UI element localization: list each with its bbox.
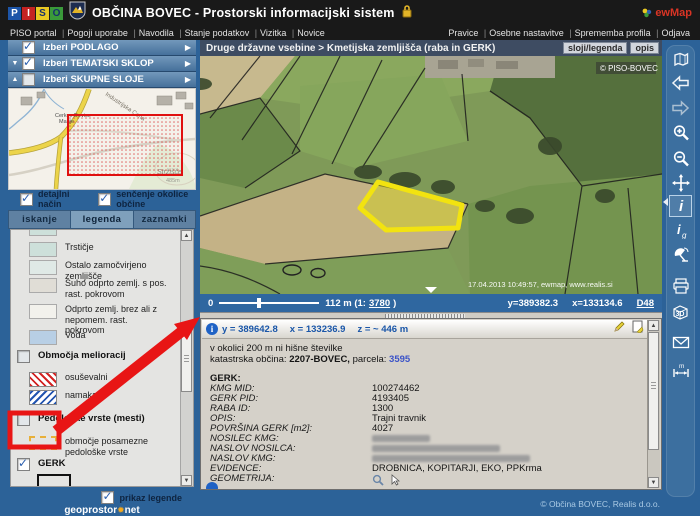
cadastral-label: katastrska občina: (210, 354, 287, 365)
prikaz-legende-checkbox[interactable] (101, 491, 114, 504)
legend-swatch (29, 260, 57, 275)
map-canvas[interactable]: © PISO-BOVEC 17.04.2013 10:49:57, ewmap,… (200, 56, 662, 294)
redacted-value (372, 435, 430, 442)
menu-item-navodila[interactable]: Navodila (139, 28, 185, 38)
melioracije-checkbox[interactable] (17, 350, 30, 363)
info-icon: i (206, 323, 218, 335)
scroll-thumb[interactable] (648, 332, 659, 450)
skupne-checkbox[interactable] (22, 73, 35, 86)
scale-slider-handle[interactable] (257, 298, 261, 308)
cadastral-value: 2207-BOVEC, (289, 354, 350, 365)
info-coord-z: z = ~ 446 m (357, 324, 408, 335)
legend-swatch-red-hatch (29, 372, 57, 387)
legend-item: območje posamezne pedološke vrste (29, 436, 169, 457)
sloji-legenda-button[interactable]: sloji/legenda (563, 42, 628, 54)
title-bar: P I S O OBČINA BOVEC - Prostorski inform… (0, 0, 700, 26)
legend-item-gerk-swatch (37, 474, 71, 487)
tab-legenda[interactable]: legenda (70, 210, 132, 229)
info-body: v okolici 200 m ni hišne številke katast… (202, 339, 648, 488)
ewmap-label: ewMap (655, 7, 692, 19)
menu-right: Pravice Osebne nastavitve Sprememba prof… (448, 28, 690, 38)
bovec-coat-of-arms-icon (69, 1, 86, 25)
svg-text:i: i (679, 198, 684, 215)
detajlni-nacin-label: detajlni način (38, 189, 82, 209)
zoom-out-icon[interactable] (669, 148, 692, 170)
overview-map[interactable]: Industrijska Cona Cerkev Device Marije S… (8, 88, 196, 190)
menu-item-osebne-nastavitve[interactable]: Osebne nastavitve (489, 28, 574, 38)
pencil-icon[interactable] (613, 320, 626, 338)
cadastral-line: katastrska občina: 2207-BOVEC, parcela: … (210, 354, 648, 365)
overview-map-icon[interactable] (669, 49, 692, 71)
scale-suffix: ) (393, 298, 396, 309)
legend-item (29, 229, 57, 236)
measure-icon[interactable]: m (669, 359, 692, 381)
piso-logo-letter: O (50, 7, 63, 20)
povrsina-value: 4027 (372, 424, 393, 434)
scroll-down-button[interactable]: ▼ (648, 477, 659, 488)
lock-icon (401, 4, 413, 23)
legend-item: namakalni (29, 390, 106, 405)
tab-zaznamki[interactable]: zaznamki (133, 210, 196, 229)
chevron-right-icon: ▶ (185, 59, 191, 68)
toolbar-collapse-arrow[interactable] (663, 198, 668, 206)
map-options-row: detajlni način senčenje okolice občine (8, 192, 196, 206)
sidebar-tabs: iskanje legenda zaznamki (8, 210, 196, 229)
hill-elevation: 485m (166, 178, 180, 184)
scale-bar-row: 0 112 m (1: 3780 ) y=389382.3 x=133134.6… (200, 294, 662, 312)
menu-item-novice[interactable]: Novice (297, 28, 325, 38)
info-scrollbar[interactable]: ▲ ▼ (647, 320, 660, 488)
menu-bar: PISO portal Pogoji uporabe Navodila Stan… (0, 26, 700, 40)
forward-arrow-icon[interactable] (669, 97, 692, 119)
piso-logo[interactable]: P I S O (8, 7, 63, 20)
3d-view-icon[interactable]: 3D (669, 301, 692, 323)
geoprostor-logo[interactable]: geoprostor✹net (8, 505, 196, 516)
legend-item: Suho odprto zemlj. s pos. rast. pokrovom (29, 278, 169, 299)
legend-group-melioracije: Območja melioracij (17, 350, 126, 363)
scroll-up-button[interactable]: ▲ (181, 230, 192, 241)
evidence-value: DROBNICA, KOPITARJI, EKO, PPKrma (372, 464, 542, 474)
legend-group-pedoloske: Pedološke vrste (mesti) (17, 413, 145, 426)
accordion-label: Izberi SKUPNE SLOJE (43, 74, 144, 85)
geoprostor-logo-right: net (125, 505, 140, 516)
svg-text:3D: 3D (676, 311, 685, 318)
map-watermark: 17.04.2013 10:49:57, ewmap, www.realis.s… (468, 280, 613, 289)
scale-text: 112 m (1: (325, 298, 366, 309)
legend-group-gerk: GERK (17, 458, 65, 471)
geometry-select-cursor-icon[interactable] (390, 474, 400, 489)
redacted-value (372, 445, 500, 452)
print-icon[interactable] (669, 275, 692, 297)
chevron-up-icon[interactable]: ▲ (8, 76, 22, 83)
scale-slider[interactable] (219, 298, 319, 308)
cursor-coord-y: y=389382.3 (508, 298, 558, 309)
menu-left: PISO portal Pogoji uporabe Navodila Stan… (10, 28, 325, 38)
opis-button[interactable]: opis (630, 42, 659, 54)
breadcrumb: Druge državne vsebine > Kmetijska zemlji… (206, 43, 495, 54)
scroll-thumb[interactable] (181, 330, 192, 392)
piso-logo-letter: S (36, 7, 49, 20)
legend-swatch-blue-hatch (29, 390, 57, 405)
svg-text:g: g (682, 231, 687, 239)
map-extent-rectangle (68, 115, 182, 175)
prikaz-legende-label: prikaz legende (119, 493, 182, 503)
mail-icon[interactable] (669, 331, 692, 353)
piso-logo-letter: P (8, 7, 21, 20)
accordion-label: Izberi TEMATSKI SKLOP (43, 58, 154, 69)
legend-item: osuševalni (29, 372, 108, 387)
gerk-checkbox[interactable] (17, 458, 30, 471)
menu-item-stanje-podatkov[interactable]: Stanje podatkov (185, 28, 260, 38)
menu-item-pogoji-uporabe[interactable]: Pogoji uporabe (67, 28, 138, 38)
piso-app-window: P I S O OBČINA BOVEC - Prostorski inform… (0, 0, 700, 516)
map-copyright: © PISO-BOVEC (600, 64, 658, 73)
copyright-footer: © Občina BOVEC, Realis d.o.o. (200, 499, 662, 509)
tab-iskanje[interactable]: iskanje (8, 210, 70, 229)
legend-scrollbar[interactable]: ▲ ▼ (180, 230, 193, 486)
scroll-up-button[interactable]: ▲ (648, 320, 659, 331)
no-house-number-text: v okolici 200 m ni hišne številke (210, 343, 648, 354)
podlago-checkbox[interactable] (22, 41, 35, 54)
legend-swatch-dashed (29, 436, 57, 450)
legend-swatch (29, 242, 57, 257)
detajlni-nacin-checkbox[interactable] (20, 193, 33, 206)
map-header: Druge državne vsebine > Kmetijska zemlji… (200, 40, 662, 56)
tematski-checkbox[interactable] (22, 57, 35, 70)
gerk-section-title: GERK: (210, 373, 648, 384)
page-title: OBČINA BOVEC - Prostorski informacijski … (92, 6, 395, 20)
accordion-izberi-skupne-sloje[interactable]: ▲ Izberi SKUPNE SLOJE ▶ (8, 72, 196, 88)
chevron-right-icon: ▶ (185, 75, 191, 84)
main-panel: Druge državne vsebine > Kmetijska zemlji… (200, 40, 662, 516)
scroll-down-button[interactable]: ▼ (181, 475, 192, 486)
cursor-coord-x: x=133134.6 (572, 298, 622, 309)
sencenje-checkbox[interactable] (98, 193, 111, 206)
scale-zero: 0 (208, 298, 213, 309)
menu-item-odjava[interactable]: Odjava (661, 28, 690, 38)
svg-text:m: m (679, 363, 684, 370)
next-result-info-icon (206, 482, 218, 490)
legend-panel: Trstičje Ostalo zamočvirjeno zemljišče S… (10, 229, 194, 487)
info-coord-y: y = 389642.8 (222, 324, 278, 335)
info-header: i y = 389642.8 x = 133236.9 z = ~ 446 m (202, 320, 648, 339)
info-coord-x: x = 133236.9 (290, 324, 346, 335)
sencenje-label: senčenje okolice občine (116, 189, 196, 209)
chevron-down-icon[interactable]: ▼ (8, 60, 22, 67)
redacted-value (372, 455, 530, 462)
legend-item: Voda (29, 330, 86, 345)
back-arrow-icon[interactable] (669, 72, 692, 94)
menu-item-sprememba-profila[interactable]: Sprememba profila (575, 28, 662, 38)
scale-value-link[interactable]: 3780 (369, 298, 390, 309)
legend-item: Trstičje (29, 242, 94, 257)
legend-swatch (29, 278, 57, 293)
show-legend-option: prikaz legende (101, 491, 182, 504)
menu-item-pravice[interactable]: Pravice (448, 28, 489, 38)
gps-satellite-icon[interactable] (669, 244, 692, 266)
legend-swatch (29, 330, 57, 345)
ewmap-icon (642, 8, 652, 18)
info-panel: i y = 389642.8 x = 133236.9 z = ~ 446 m … (200, 318, 662, 490)
star-icon: ✹ (117, 505, 125, 515)
ewmap-brand: ewMap (642, 7, 692, 19)
zoom-in-icon[interactable] (669, 122, 692, 144)
accordion-izberi-podlago[interactable]: Izberi PODLAGO ▶ (8, 40, 196, 56)
menu-item-vizitka[interactable]: Vizitka (260, 28, 297, 38)
legend-swatch (29, 304, 57, 319)
identify-group-tool-icon[interactable]: ig (669, 219, 692, 241)
piso-logo-letter: I (22, 7, 35, 20)
sidebar: Izberi PODLAGO ▶ ▼ Izberi TEMATSKI SKLOP… (8, 40, 196, 516)
identify-tool-icon[interactable]: i (669, 195, 692, 217)
parcel-label: parcela: (353, 354, 387, 365)
chevron-right-icon: ▶ (185, 43, 191, 52)
map-toolbar: i ig 3D m (666, 45, 695, 497)
gerk-swatch (37, 474, 71, 487)
pan-icon[interactable] (669, 172, 692, 194)
menu-item-piso-portal[interactable]: PISO portal (10, 28, 67, 38)
accordion-izberi-tematski-sklop[interactable]: ▼ Izberi TEMATSKI SKLOP ▶ (8, 56, 196, 72)
svg-text:i: i (677, 222, 681, 237)
accordion-label: Izberi PODLAGO (43, 42, 118, 53)
pedoloske-checkbox[interactable] (17, 413, 30, 426)
datum-link[interactable]: D48 (637, 298, 654, 309)
parcel-link[interactable]: 3595 (389, 354, 410, 365)
geometry-zoom-icon[interactable] (372, 474, 384, 489)
geoprostor-logo-left: geoprostor (64, 505, 117, 516)
edit-note-icon[interactable] (631, 320, 644, 338)
